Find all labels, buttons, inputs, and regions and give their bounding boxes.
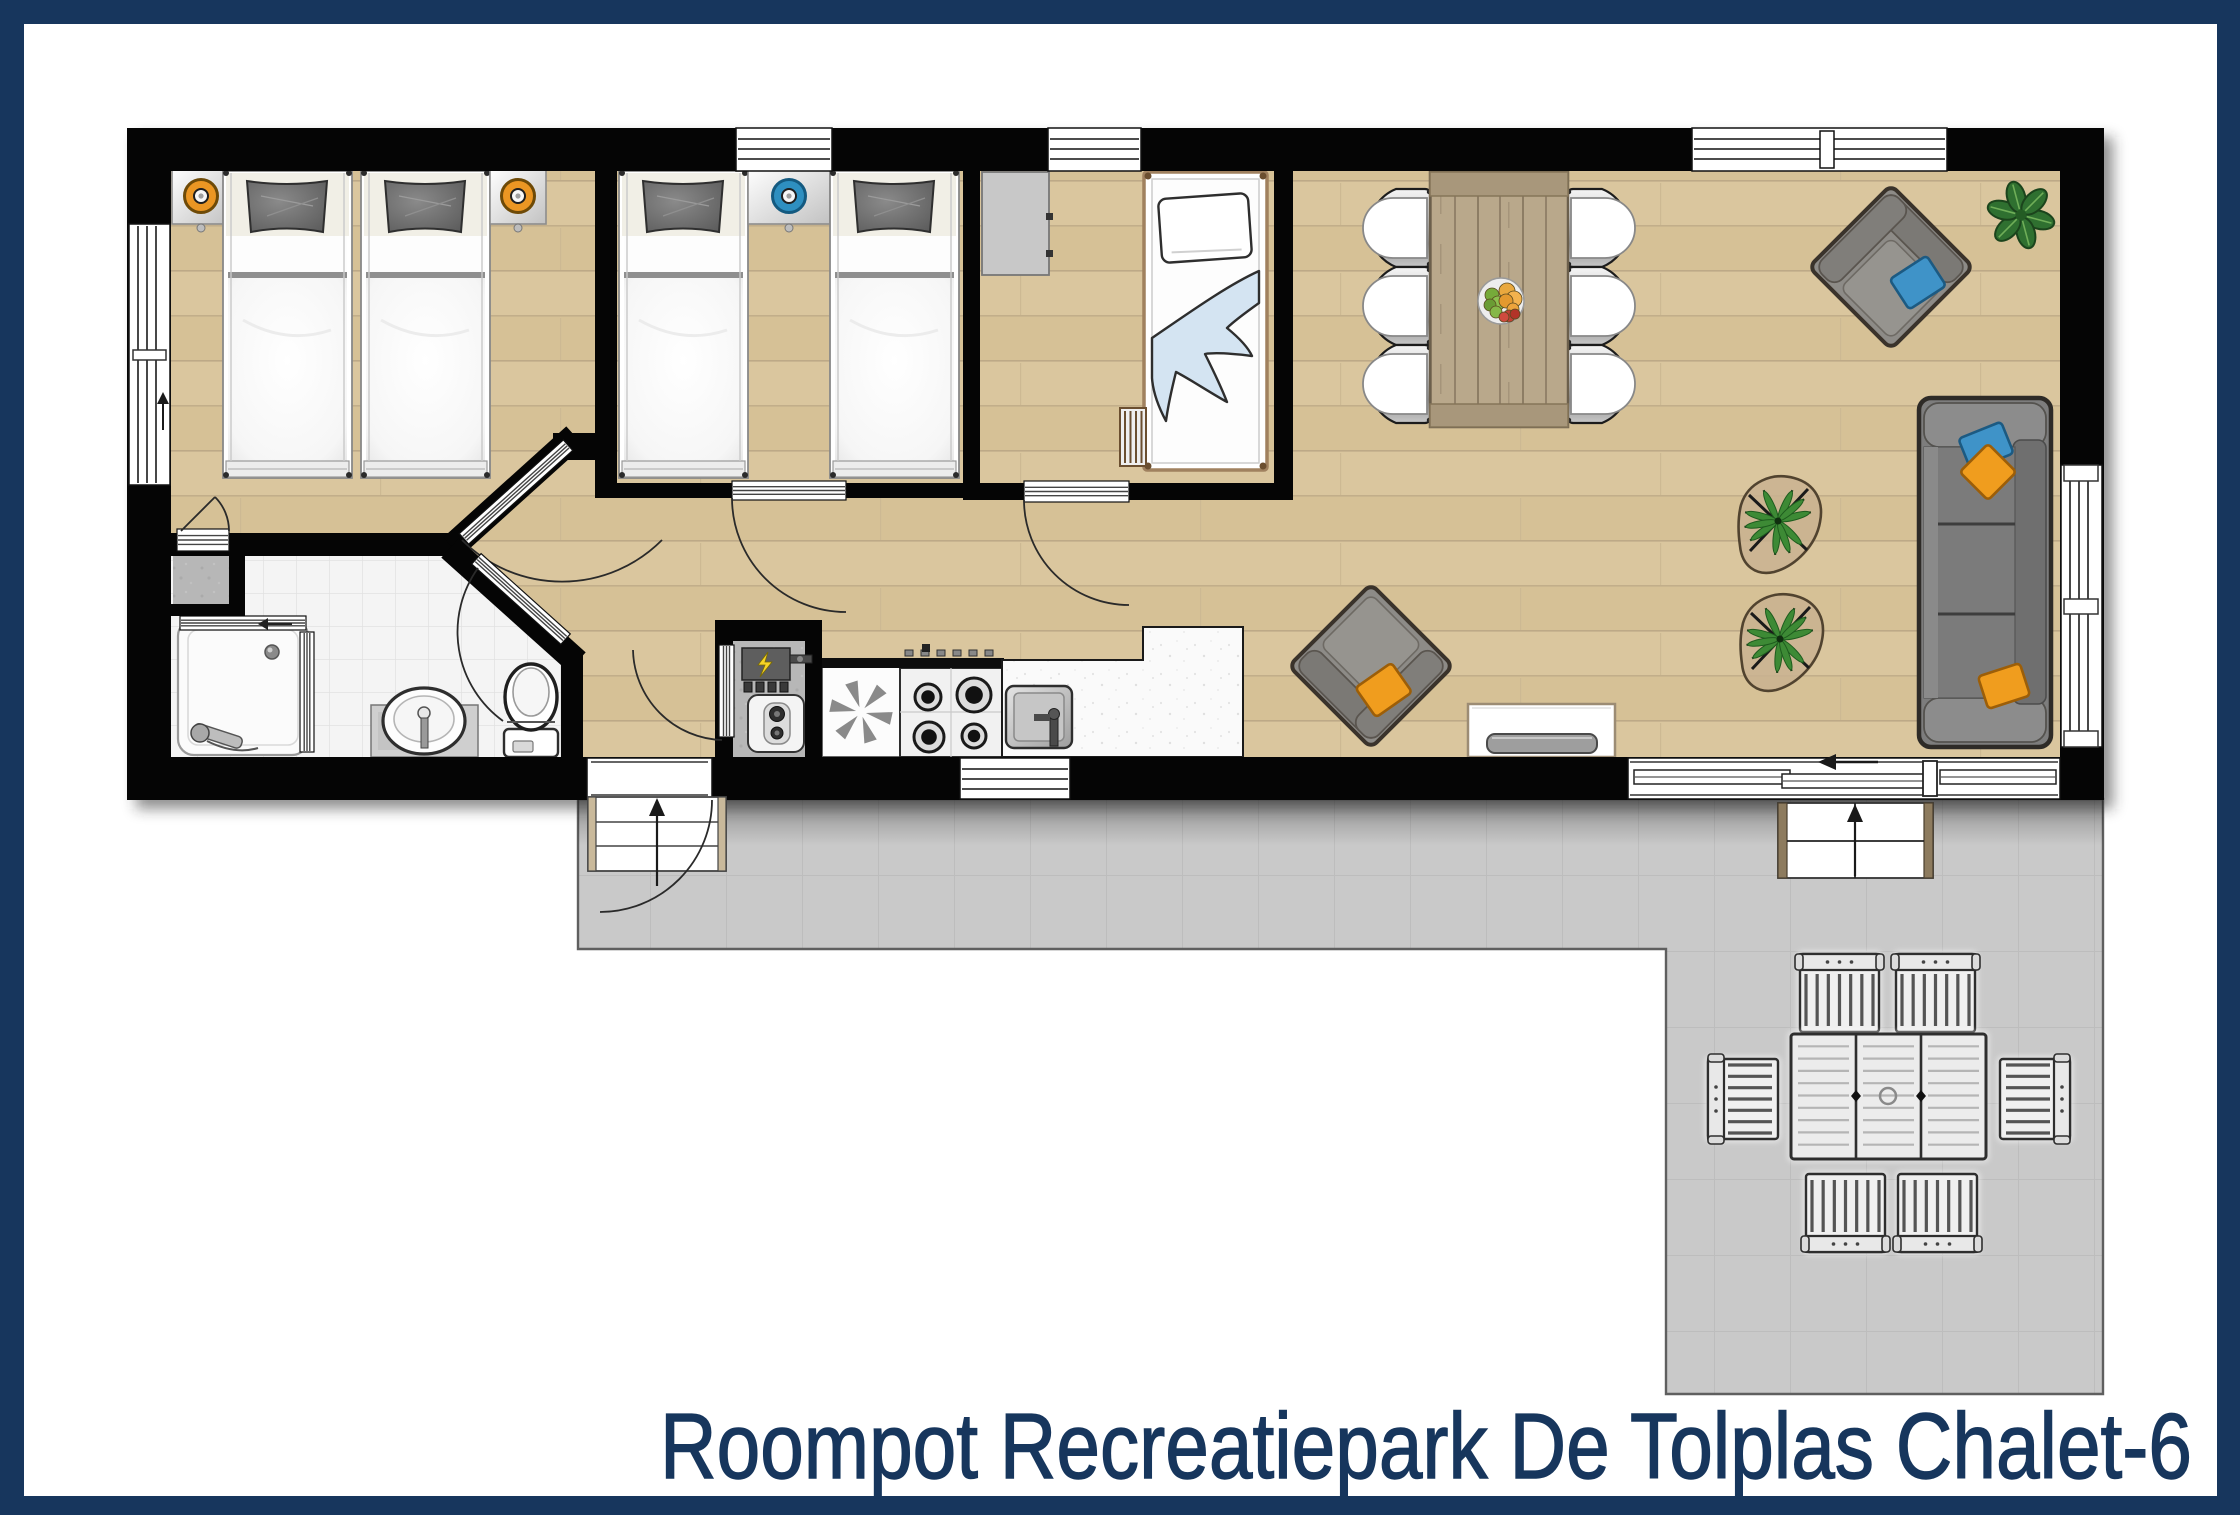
svg-text:Roompot Recreatiepark De Tolpl: Roompot Recreatiepark De Tolplas Chalet-… [660,1394,2192,1498]
